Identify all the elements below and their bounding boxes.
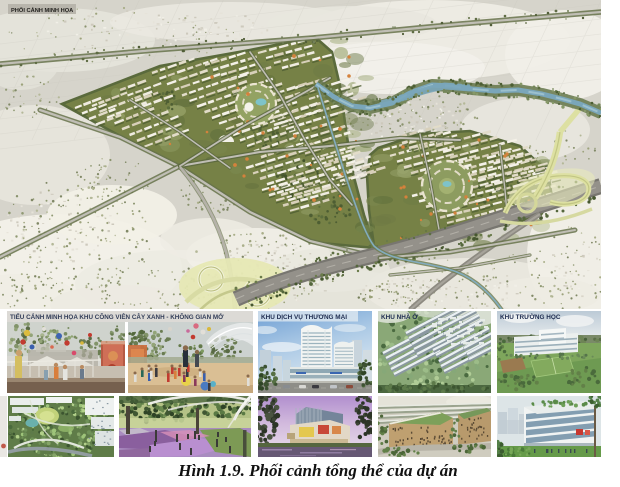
- svg-text:TIỂU CẢNH MINH HỌA KHU CÔNG VI: TIỂU CẢNH MINH HỌA KHU CÔNG VIÊN CÂY XAN…: [10, 312, 224, 321]
- svg-text:KHU DỊCH VỤ THƯƠNG MẠI: KHU DỊCH VỤ THƯƠNG MẠI: [261, 314, 347, 321]
- svg-text:PHỐI CẢNH MINH HỌA: PHỐI CẢNH MINH HỌA: [11, 7, 73, 14]
- svg-text:KHU NHÀ Ở: KHU NHÀ Ở: [381, 312, 418, 321]
